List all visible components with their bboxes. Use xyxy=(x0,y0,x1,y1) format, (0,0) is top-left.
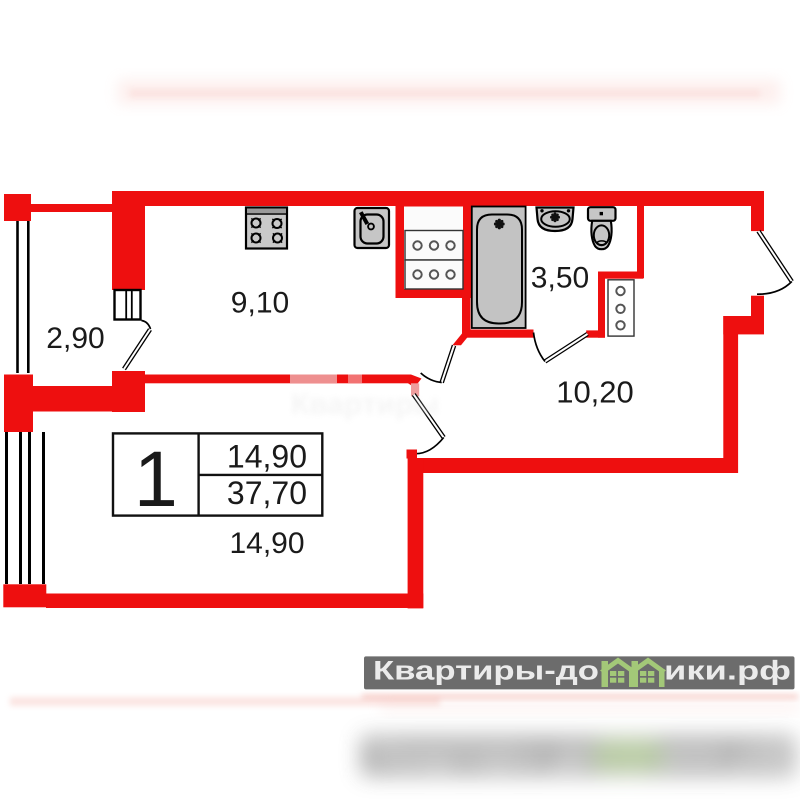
svg-text:Квартиры-до: Квартиры-до xyxy=(375,740,597,770)
svg-text:2,90: 2,90 xyxy=(46,322,104,355)
svg-text:Квартиры: Квартиры xyxy=(291,388,439,421)
svg-text:9,10: 9,10 xyxy=(231,287,289,320)
svg-text:ики.рф: ики.рф xyxy=(664,740,789,770)
svg-text:14,90: 14,90 xyxy=(227,439,307,475)
svg-text:ики.рф: ики.рф xyxy=(664,656,791,686)
svg-text:14,90: 14,90 xyxy=(229,527,304,560)
svg-text:Квартиры-до: Квартиры-до xyxy=(373,656,599,686)
svg-text:1: 1 xyxy=(134,434,178,523)
svg-text:3,50: 3,50 xyxy=(531,262,589,295)
svg-text:37,70: 37,70 xyxy=(227,475,307,511)
svg-text:10,20: 10,20 xyxy=(556,375,634,410)
